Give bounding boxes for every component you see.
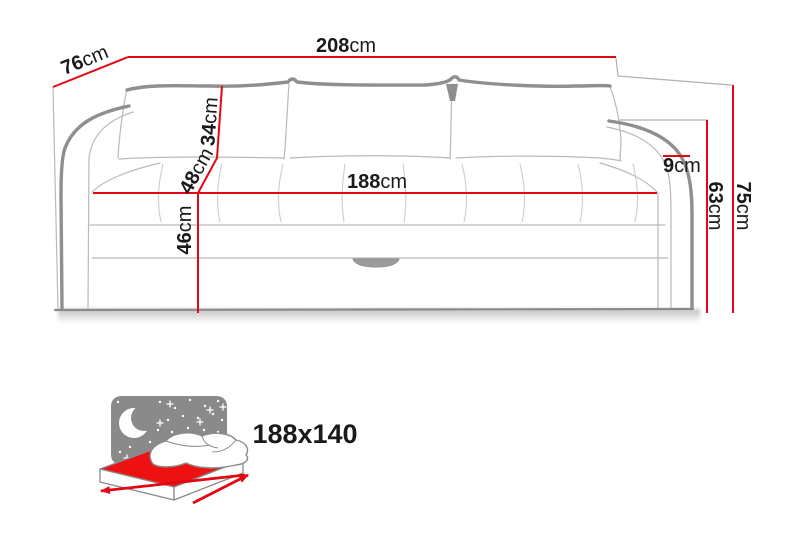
total-width-value: 208 xyxy=(316,35,349,57)
sofa-floor-shadow xyxy=(58,309,700,323)
seat-height-label: 46cm xyxy=(174,206,196,255)
total-height-value: 75 xyxy=(732,182,754,204)
sleeping-function-icon: 188x140 xyxy=(100,396,358,503)
pillow-top-outline xyxy=(127,77,610,90)
back-top-right-edge-line xyxy=(616,58,731,85)
pillow3-bottom-line xyxy=(456,156,621,161)
diagram-canvas: 76cm 208cm 34cm 48cm 46cm 188cm 9cm 63cm… xyxy=(0,0,800,533)
armrest-top-width-value: 9 xyxy=(663,155,674,177)
back-pillow-height-unit: cm xyxy=(199,96,223,124)
drawer-handle xyxy=(353,259,399,267)
back-left-edge-line xyxy=(53,88,58,310)
sleeping-area-size-label: 188x140 xyxy=(252,419,357,449)
backrest-height-label: 48cm xyxy=(175,144,218,197)
right-arm-inner-line xyxy=(607,127,671,308)
pillow2-bottom-line xyxy=(290,156,450,158)
total-height-label: 75cm xyxy=(732,182,754,231)
back-pillow-height-value: 34 xyxy=(197,122,221,147)
back-pillow-height-label: 34cm xyxy=(197,96,222,146)
pillow-separator-notch xyxy=(446,84,458,101)
seat-width-label: 188cm xyxy=(347,171,407,193)
armrest-top-width-label: 9cm xyxy=(663,155,701,177)
sofa-dimension-diagram: 76cm 208cm 34cm 48cm 46cm 188cm 9cm 63cm… xyxy=(0,0,800,533)
seat-width-value: 188 xyxy=(347,171,380,193)
seat-height-unit: cm xyxy=(174,206,196,233)
pillow-separator-left xyxy=(284,84,289,159)
left-arm-seat-seam xyxy=(92,163,160,192)
right-arm-outer-outline xyxy=(609,121,692,308)
total-width-unit: cm xyxy=(349,35,376,57)
armrest-top-width-unit: cm xyxy=(674,155,701,177)
left-arm-outer-outline xyxy=(61,106,129,308)
total-height-unit: cm xyxy=(732,204,754,231)
sofa-bottom-edge xyxy=(55,309,693,310)
total-width-label: 208cm xyxy=(316,35,376,57)
seat-height-value: 46 xyxy=(174,232,196,254)
armrest-height-unit: cm xyxy=(704,204,726,231)
seat-width-unit: cm xyxy=(380,171,407,193)
armrest-height-value: 63 xyxy=(704,182,726,204)
armrest-height-label: 63cm xyxy=(704,182,726,231)
pillow1-left-edge xyxy=(118,89,127,158)
right-arm-seat-seam xyxy=(600,163,657,192)
left-arm-inner-line xyxy=(88,112,133,308)
